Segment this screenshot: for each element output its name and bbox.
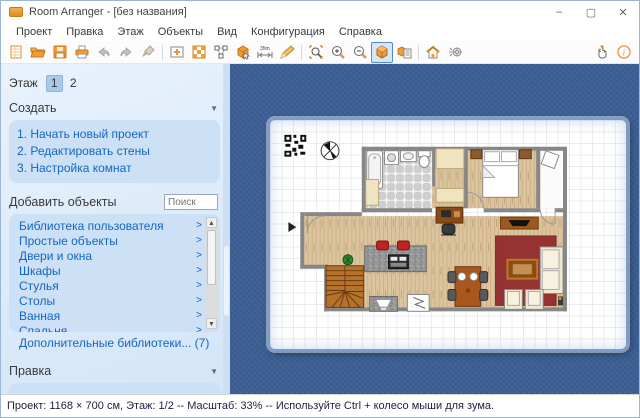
fridge[interactable] bbox=[407, 294, 429, 311]
zoom-region-icon[interactable] bbox=[305, 42, 327, 63]
library-item-cupboards[interactable]: Шкафы> bbox=[19, 263, 218, 278]
armchair[interactable] bbox=[505, 290, 523, 310]
menu-help[interactable]: Справка bbox=[332, 24, 389, 40]
floor-label: Этаж bbox=[9, 76, 38, 90]
app-window: Room Arranger - [без названия] – ▢ ✕ Про… bbox=[0, 0, 640, 418]
toolbar-separator bbox=[418, 45, 419, 60]
edit-points-icon[interactable] bbox=[210, 42, 232, 63]
chevron-right-icon: > bbox=[196, 310, 202, 321]
sidebar: Этаж 1 2 Создать ▼ 1. Начать новый проек… bbox=[1, 64, 230, 394]
section-add-objects-header: Добавить объекты bbox=[7, 192, 222, 212]
closet[interactable] bbox=[436, 188, 464, 202]
scrollbar-thumb[interactable] bbox=[207, 230, 216, 285]
measure-icon[interactable]: 35m bbox=[254, 42, 276, 63]
svg-text:35m: 35m bbox=[260, 46, 270, 52]
library-item-bedroom[interactable]: Спальня> bbox=[19, 323, 218, 332]
chevron-right-icon: > bbox=[196, 250, 202, 261]
link-room-setup[interactable]: 3. Настройка комнат bbox=[17, 160, 212, 177]
bar-stool[interactable] bbox=[397, 241, 409, 250]
app-logo-icon bbox=[9, 7, 23, 17]
entry-marker-icon bbox=[288, 222, 296, 232]
library-item-tables[interactable]: Столы> bbox=[19, 293, 218, 308]
chevron-right-icon: > bbox=[196, 265, 202, 276]
chevron-right-icon: > bbox=[196, 325, 202, 332]
library-item-simple-objects[interactable]: Простые объекты> bbox=[19, 233, 218, 248]
library-item-chairs[interactable]: Стулья> bbox=[19, 278, 218, 293]
scroll-down-icon[interactable]: ▼ bbox=[206, 318, 217, 329]
nightstand[interactable] bbox=[471, 150, 482, 159]
dining-chair[interactable] bbox=[448, 290, 456, 301]
closet[interactable] bbox=[436, 149, 464, 169]
draw-icon[interactable] bbox=[276, 42, 298, 63]
walkthrough-icon[interactable] bbox=[422, 42, 444, 63]
chevron-right-icon: > bbox=[196, 295, 202, 306]
compass bbox=[321, 142, 339, 160]
toolbar: 35m i bbox=[1, 41, 639, 64]
library-scrollbar[interactable]: ▲ ▼ bbox=[206, 217, 217, 329]
maximize-button[interactable]: ▢ bbox=[575, 1, 607, 23]
print-icon[interactable] bbox=[71, 42, 93, 63]
library-item-user[interactable]: Библиотека пользователя> bbox=[19, 218, 218, 233]
view-3d-icon[interactable] bbox=[371, 42, 393, 63]
bar-stool[interactable] bbox=[377, 241, 389, 250]
pan-hand-icon[interactable] bbox=[591, 42, 613, 63]
floor-tab-2[interactable]: 2 bbox=[65, 75, 82, 92]
save-icon[interactable] bbox=[49, 42, 71, 63]
menu-floor[interactable]: Этаж bbox=[110, 24, 150, 40]
sidebar-scrollbar-thumb[interactable] bbox=[224, 246, 229, 316]
edit-walls-icon[interactable] bbox=[166, 42, 188, 63]
sofa[interactable] bbox=[540, 247, 563, 294]
object-library-list: Библиотека пользователя> Простые объекты… bbox=[9, 214, 220, 332]
section-create-title: Создать bbox=[9, 101, 57, 115]
chevron-right-icon: > bbox=[196, 235, 202, 246]
menu-project[interactable]: Проект bbox=[9, 24, 59, 40]
menu-configuration[interactable]: Конфигурация bbox=[244, 24, 332, 40]
desk-chair[interactable] bbox=[441, 224, 456, 235]
sink-counter[interactable] bbox=[370, 296, 398, 311]
create-panel: 1. Начать новый проект 2. Редактировать … bbox=[9, 120, 220, 183]
library-item-bathroom[interactable]: Ванная> bbox=[19, 308, 218, 323]
chevron-right-icon: > bbox=[196, 220, 202, 231]
insert-object-icon[interactable] bbox=[232, 42, 254, 63]
section-create-header[interactable]: Создать ▼ bbox=[7, 98, 222, 118]
section-edit-header[interactable]: Правка ▼ bbox=[7, 361, 222, 381]
coffee-table[interactable] bbox=[507, 260, 537, 279]
open-folder-icon[interactable] bbox=[27, 42, 49, 63]
menu-objects[interactable]: Объекты bbox=[151, 24, 210, 40]
stairs[interactable] bbox=[326, 266, 364, 308]
dining-chair[interactable] bbox=[480, 290, 488, 301]
section-add-objects-title: Добавить объекты bbox=[9, 195, 117, 209]
collapse-caret-icon[interactable]: ▼ bbox=[210, 367, 218, 376]
bed[interactable] bbox=[483, 150, 519, 198]
toilet[interactable] bbox=[418, 151, 430, 168]
minimize-button[interactable]: – bbox=[543, 1, 575, 23]
render-icon[interactable] bbox=[444, 42, 466, 63]
nightstand[interactable] bbox=[519, 150, 531, 159]
dining-chair[interactable] bbox=[480, 272, 488, 283]
menu-view[interactable]: Вид bbox=[210, 24, 244, 40]
scroll-up-icon[interactable]: ▲ bbox=[206, 217, 217, 228]
info-icon[interactable]: i bbox=[613, 42, 635, 63]
dining-table[interactable] bbox=[455, 267, 481, 307]
undo-icon[interactable] bbox=[93, 42, 115, 63]
toolbar-separator bbox=[162, 45, 163, 60]
status-bar: Проект: 1168 × 700 см, Этаж: 1/2 -- Масш… bbox=[1, 394, 639, 417]
desk[interactable] bbox=[436, 207, 463, 223]
sidebar-scrollbar[interactable] bbox=[223, 64, 230, 394]
sink[interactable] bbox=[400, 151, 416, 162]
washing-machine[interactable] bbox=[385, 151, 399, 165]
zoom-in-icon[interactable] bbox=[327, 42, 349, 63]
tiles-icon[interactable] bbox=[188, 42, 210, 63]
title-bar: Room Arranger - [без названия] – ▢ ✕ bbox=[1, 1, 639, 23]
search-input[interactable] bbox=[164, 194, 218, 210]
floor-tab-1[interactable]: 1 bbox=[46, 75, 63, 92]
redo-icon[interactable] bbox=[115, 42, 137, 63]
dining-chair[interactable] bbox=[448, 272, 456, 283]
zoom-out-icon[interactable] bbox=[349, 42, 371, 63]
plant[interactable] bbox=[343, 254, 353, 266]
menu-edit[interactable]: Правка bbox=[59, 24, 110, 40]
floor-plan[interactable] bbox=[270, 120, 626, 349]
section-edit-title: Правка bbox=[9, 364, 51, 378]
library-item-doors-windows[interactable]: Двери и окна> bbox=[19, 248, 218, 263]
closet[interactable] bbox=[366, 179, 379, 205]
link-start-new-project[interactable]: 1. Начать новый проект bbox=[17, 126, 212, 143]
collapse-caret-icon[interactable]: ▼ bbox=[210, 104, 218, 113]
format-brush-icon[interactable] bbox=[137, 42, 159, 63]
armchair[interactable] bbox=[525, 290, 543, 310]
qr-code bbox=[283, 134, 307, 158]
chevron-right-icon: > bbox=[196, 280, 202, 291]
menu-bar: Проект Правка Этаж Объекты Вид Конфигура… bbox=[1, 23, 639, 41]
new-document-icon[interactable] bbox=[5, 42, 27, 63]
link-edit-walls[interactable]: 2. Редактировать стены bbox=[17, 143, 212, 160]
close-button[interactable]: ✕ bbox=[607, 1, 639, 23]
drawing-canvas[interactable] bbox=[230, 64, 639, 394]
kitchen-island[interactable] bbox=[365, 246, 426, 272]
window-title: Room Arranger - [без названия] bbox=[29, 6, 187, 18]
link-more-libraries[interactable]: Дополнительные библиотеки... (7) bbox=[19, 336, 222, 352]
plan-paper[interactable] bbox=[268, 118, 628, 351]
edit-panel bbox=[9, 383, 220, 394]
toolbar-separator bbox=[301, 45, 302, 60]
status-text: Проект: 1168 × 700 см, Этаж: 1/2 -- Масш… bbox=[7, 400, 494, 412]
object-list-icon[interactable] bbox=[393, 42, 415, 63]
radiator[interactable] bbox=[558, 296, 563, 305]
tv-stand[interactable] bbox=[501, 217, 539, 229]
